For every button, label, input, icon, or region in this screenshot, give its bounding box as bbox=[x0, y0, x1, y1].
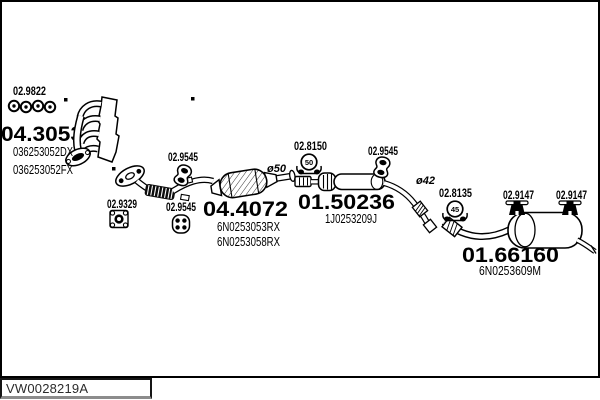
hanger-icon bbox=[373, 156, 391, 179]
rear-hanger-front-code[interactable]: 02.9147 bbox=[503, 188, 534, 202]
position-marker-icon bbox=[64, 98, 68, 102]
clamp-45-size: 45 bbox=[451, 205, 459, 214]
clamp-50-code[interactable]: 02.8150 bbox=[294, 139, 327, 153]
rear-muffler-oe: 6N0253609M bbox=[479, 264, 541, 278]
manifold-gasket-code[interactable]: 02.9822 bbox=[13, 84, 46, 98]
hanger-icon bbox=[173, 215, 190, 233]
clamp-50-icon: 50 bbox=[297, 154, 321, 174]
position-marker-icon bbox=[112, 167, 116, 171]
clamp-45-icon: 45 bbox=[443, 201, 467, 221]
manifold-code[interactable]: 04.3053 bbox=[1, 123, 83, 146]
clamp-45-code[interactable]: 02.8135 bbox=[439, 186, 472, 200]
manifold-oe-2: 036253052FX bbox=[13, 163, 74, 177]
drawing-code-box: VW0028219A bbox=[0, 378, 152, 399]
rear-hanger-rear-code[interactable]: 02.9147 bbox=[556, 188, 587, 202]
front-pipe-oe-2: 6N0253058RX bbox=[217, 235, 281, 249]
front-pipe-code[interactable]: 04.4072 bbox=[203, 198, 288, 221]
hanger-rear-code[interactable]: 02.9545 bbox=[166, 200, 196, 214]
front-pipe-oe-1: 6N0253053RX bbox=[217, 220, 281, 234]
position-marker-icon bbox=[191, 97, 195, 101]
hanger-front-code[interactable]: 02.9545 bbox=[168, 150, 198, 164]
mid-muffler-code[interactable]: 01.50236 bbox=[298, 191, 395, 214]
mid-muffler-oe: 1J0253209J bbox=[325, 212, 377, 226]
flange-gasket-icon bbox=[110, 211, 128, 228]
manifold-oe-1: 036253052DX bbox=[13, 145, 73, 159]
exhaust-diagram-page: 04.3053 bbox=[0, 0, 600, 400]
diameter-42-label: ø42 bbox=[416, 175, 435, 187]
exhaust-diagram-canvas: 04.3053 bbox=[0, 0, 600, 400]
drawing-code: VW0028219A bbox=[6, 381, 88, 396]
diameter-50-label: ø50 bbox=[267, 163, 287, 175]
manifold-gasket-icon bbox=[9, 101, 55, 112]
clamp-50-size: 50 bbox=[305, 158, 313, 167]
mid-muffler-hanger-code[interactable]: 02.9545 bbox=[368, 144, 398, 158]
flange-gasket-code[interactable]: 02.9329 bbox=[107, 197, 137, 211]
